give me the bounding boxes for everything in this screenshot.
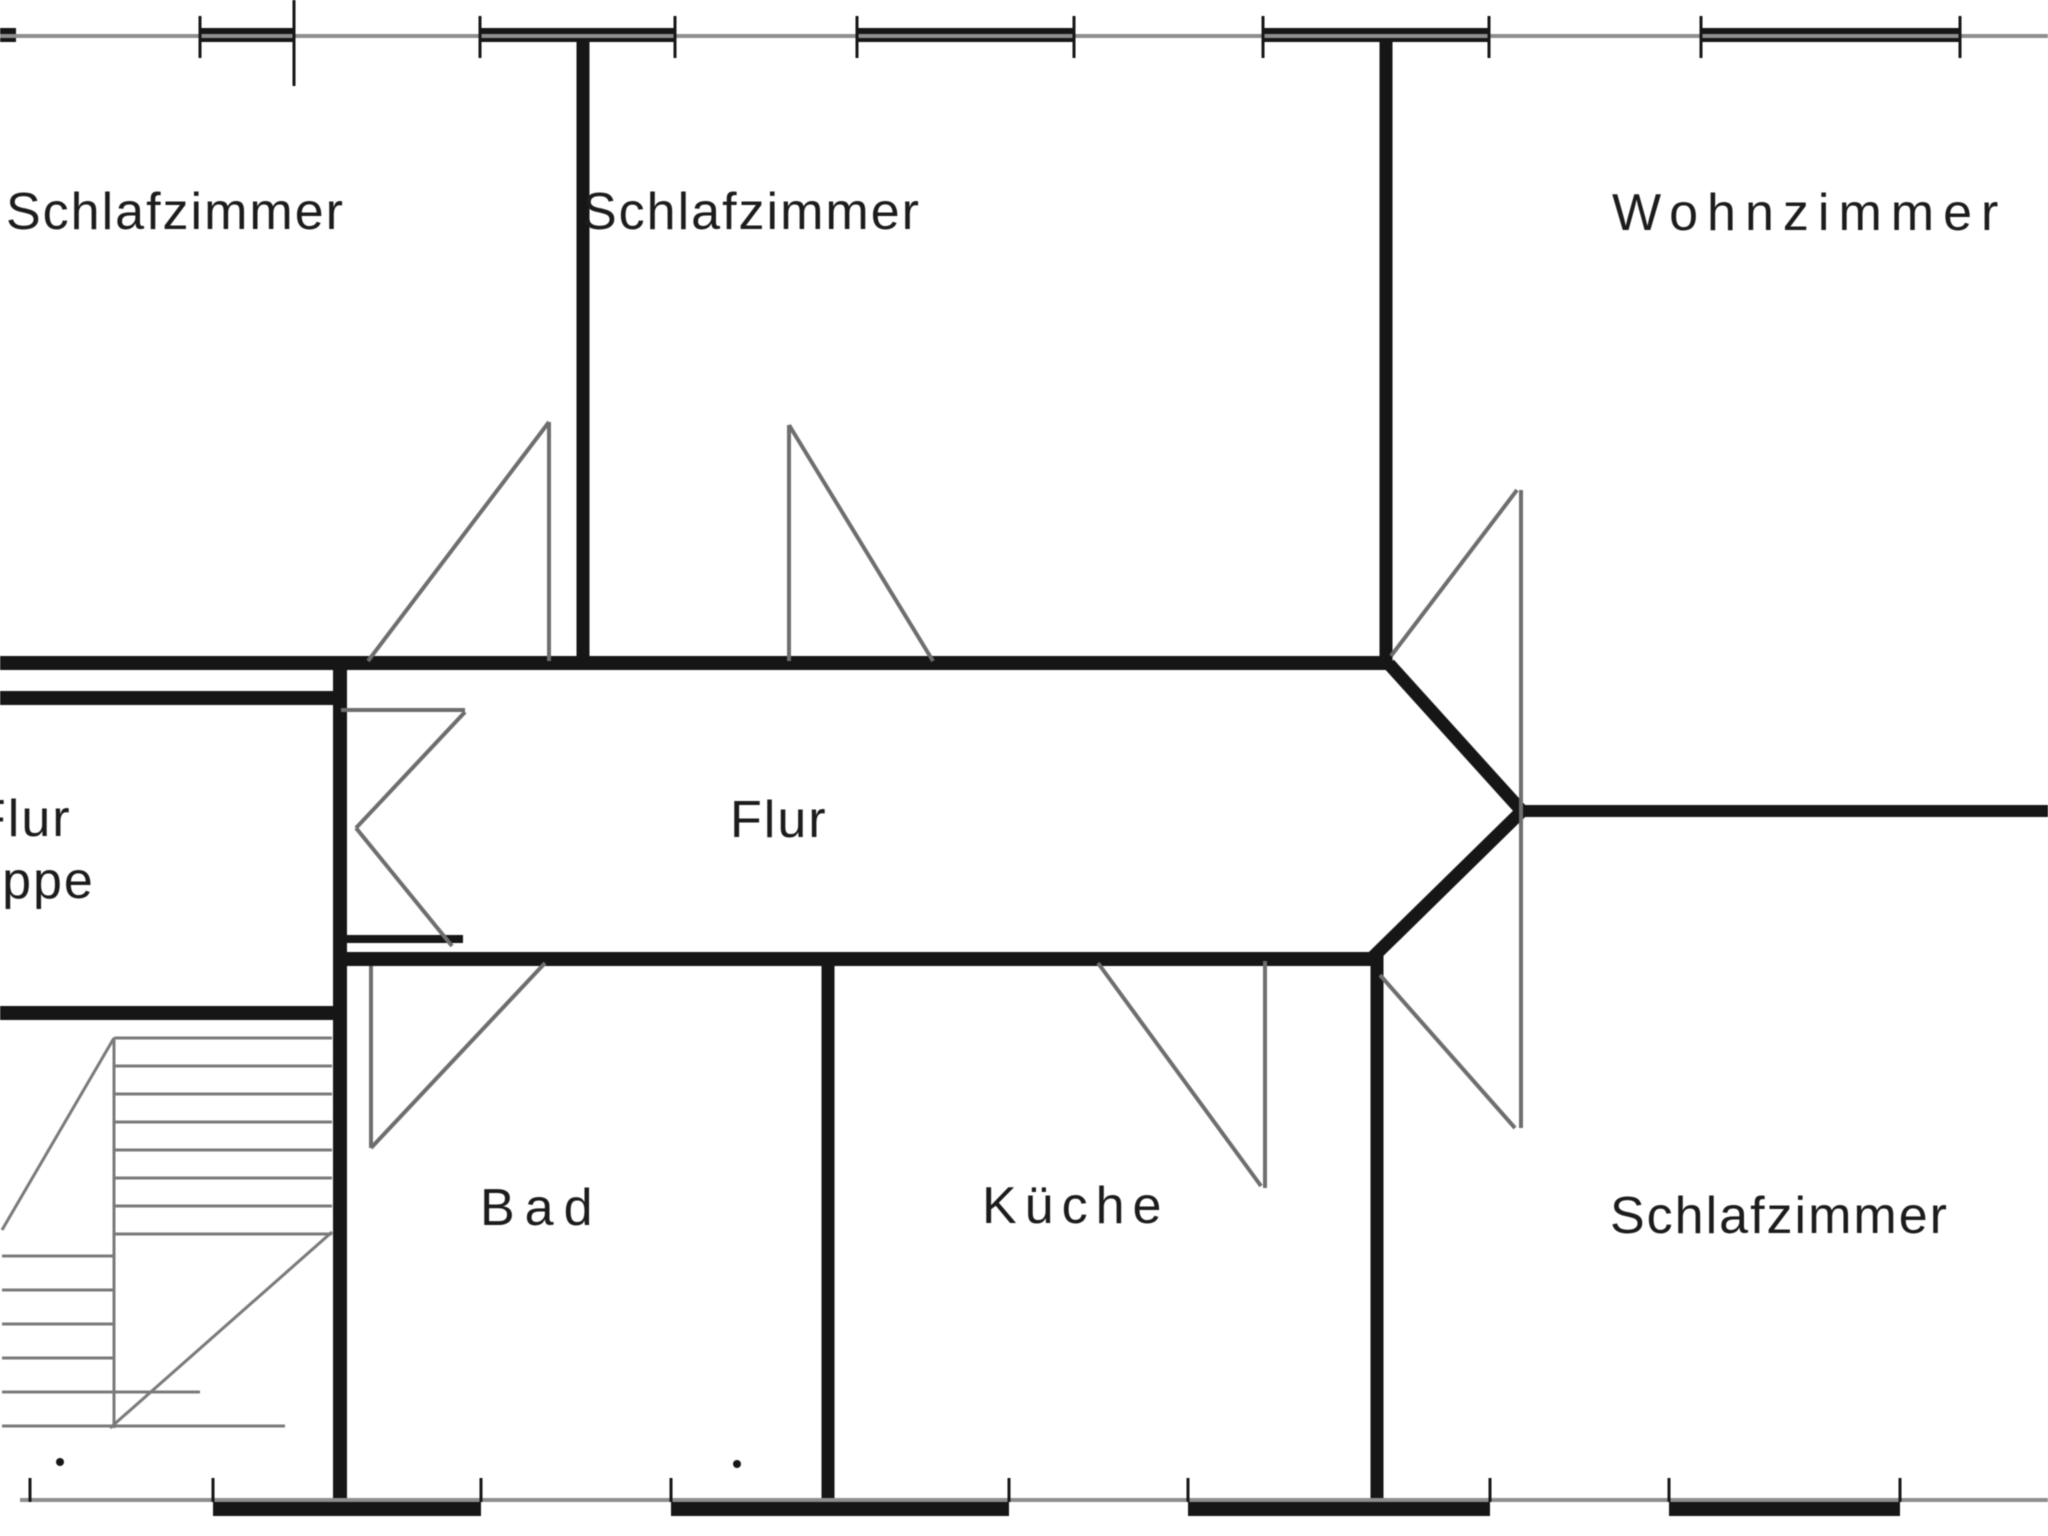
- room-label-treppe-clipped: Treppe: [0, 851, 95, 911]
- window-sill-lines: [0, 36, 2048, 1500]
- room-label-schlafzimmer-northwest: Schlafzimmer: [6, 182, 345, 242]
- room-label-flur-left-clipped: Flur: [0, 789, 72, 849]
- room-label-bad: Bad: [480, 1178, 603, 1238]
- corridor-funnel-walls: [1372, 664, 1521, 958]
- door-symbols: [341, 422, 1521, 1188]
- room-label-schlafzimmer-south-clipped: Schlafzimmer: [1610, 1186, 1949, 1246]
- room-label-kueche: Küche: [982, 1176, 1169, 1236]
- interior-walls: [0, 28, 2048, 1516]
- room-label-wohnzimmer: Wohnzimmer: [1612, 183, 2007, 243]
- room-label-schlafzimmer-north: Schlafzimmer: [582, 182, 921, 242]
- floor-plan: Schlafzimmer Schlafzimmer Wohnzimmer Flu…: [0, 0, 2048, 1536]
- room-label-flur-corridor: Flur: [730, 790, 828, 850]
- window-opening-dots: [56, 1458, 741, 1468]
- exterior-walls: [0, 35, 1960, 1509]
- staircase-symbol: [2, 1038, 332, 1428]
